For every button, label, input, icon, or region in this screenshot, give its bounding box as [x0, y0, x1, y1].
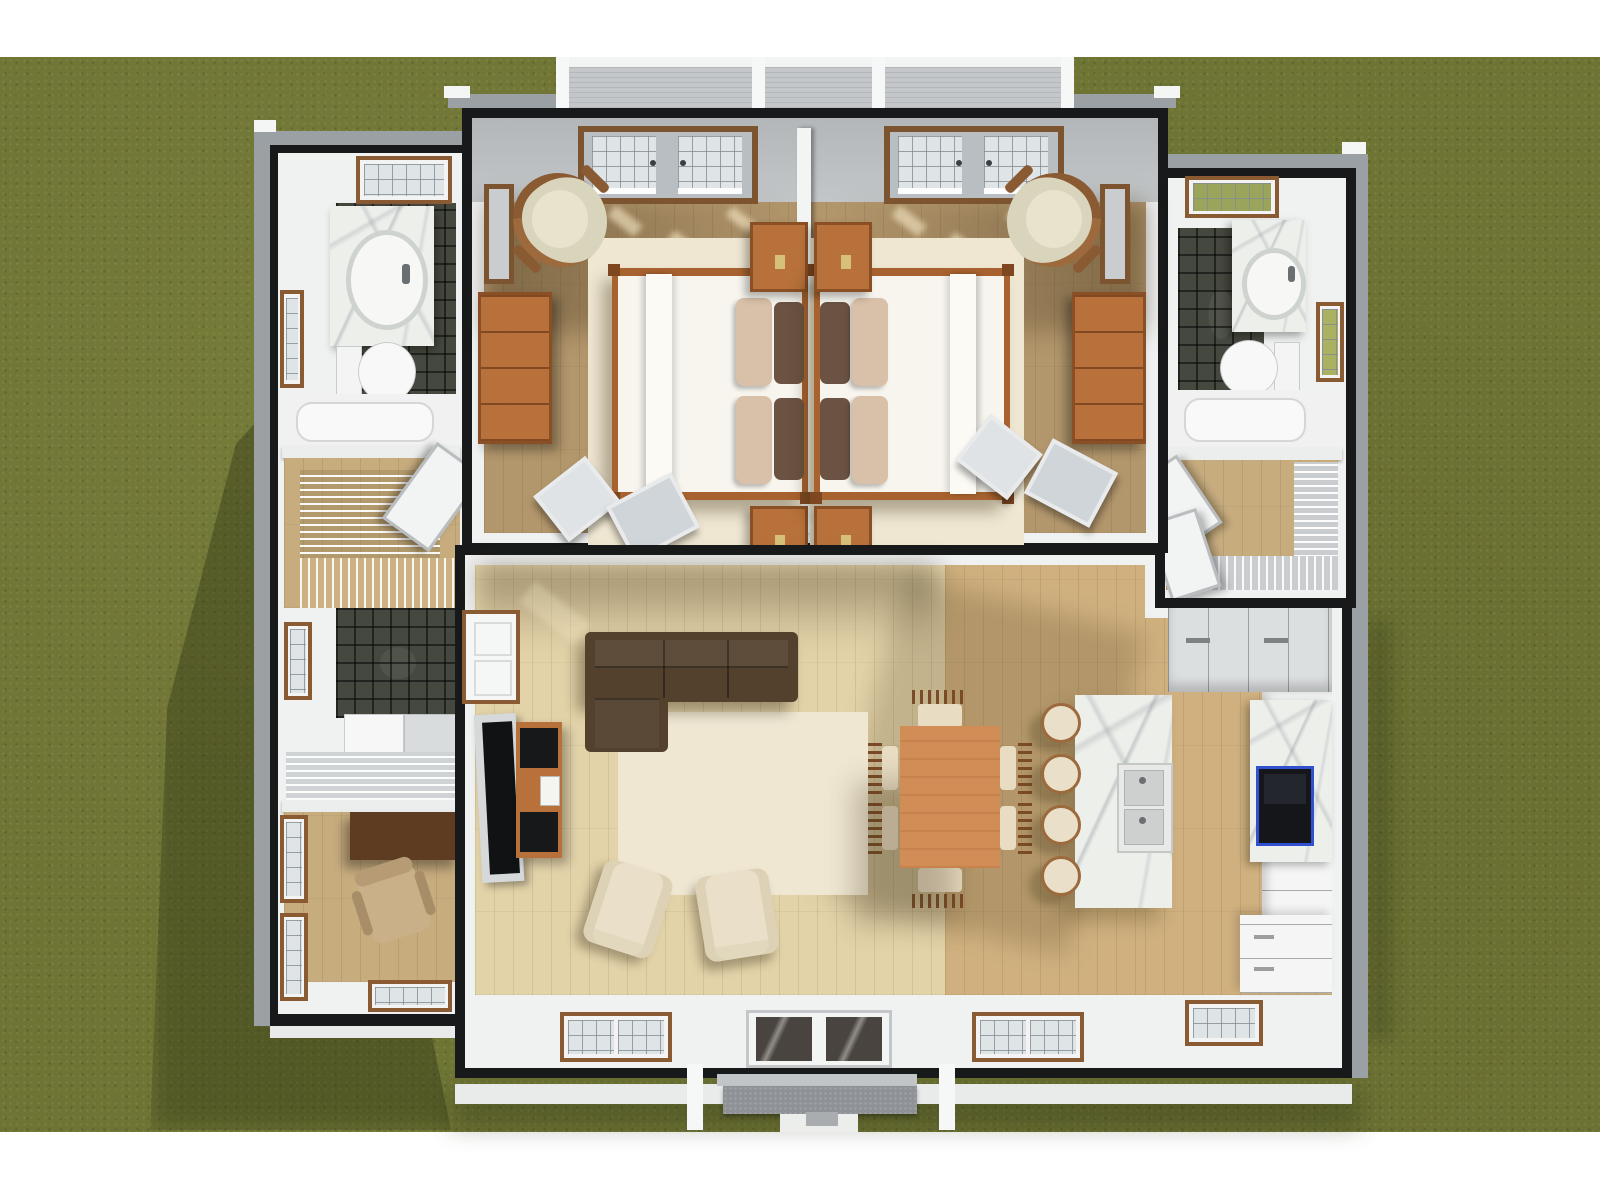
dining-chair	[1000, 742, 1032, 794]
bath1-vanity	[330, 206, 434, 346]
living-window-south-1	[560, 1012, 672, 1062]
office-window-west-1	[280, 815, 308, 903]
pillow-tan	[736, 396, 772, 484]
pillow-tan	[852, 298, 888, 386]
bath1-window-north	[356, 156, 452, 204]
roof-return-wingr	[1342, 142, 1366, 154]
porch-post	[939, 1064, 955, 1130]
eave-wing-right-north	[1148, 154, 1368, 168]
bath2-sink	[1242, 248, 1306, 320]
closet-shelf-east	[1294, 462, 1338, 564]
bedpost	[1002, 264, 1014, 276]
eave-wing-left-north	[254, 131, 470, 145]
porch-step-upper	[717, 1074, 917, 1086]
dining-chair	[1000, 802, 1032, 854]
deck-post	[556, 57, 569, 113]
bath1-sink	[346, 230, 428, 330]
bedroom2-nightstand-top	[814, 222, 872, 292]
bedpost	[608, 264, 620, 276]
stove	[1256, 766, 1314, 846]
roof-return-wingl	[254, 120, 276, 132]
bedpost	[810, 492, 822, 504]
deck-post	[872, 57, 885, 113]
dining-chair	[912, 690, 968, 730]
pillow-tan	[852, 396, 888, 484]
sectional-sofa	[585, 632, 800, 754]
bath2-window-north	[1185, 176, 1279, 218]
bath1-toilet	[336, 342, 416, 402]
bar-stool	[1041, 754, 1081, 794]
roof-return-ne	[1154, 86, 1180, 98]
island-sink	[1117, 763, 1173, 853]
bedroom2-dresser	[1072, 292, 1146, 444]
floor-plan-rendering	[0, 0, 1600, 1200]
bedroom1-accent-chair	[514, 172, 606, 268]
bar-stool	[1041, 856, 1081, 896]
office-desk	[350, 812, 460, 860]
bath1-faucet	[402, 264, 410, 284]
porch-steps	[723, 1086, 917, 1114]
porch-pad	[806, 1112, 838, 1126]
dining-chair	[868, 802, 900, 854]
laundry-window-west	[284, 622, 312, 700]
bedroom1-bed	[612, 268, 808, 500]
dining-table	[900, 726, 1000, 868]
pillow-brown	[774, 398, 804, 480]
landing-railing	[286, 752, 458, 800]
living-window-south-2	[972, 1012, 1084, 1062]
deck-rail	[556, 57, 1074, 67]
office-window-south	[368, 980, 452, 1012]
bath2-toilet	[1220, 340, 1300, 396]
pillow-tan	[736, 298, 772, 386]
house-shadow-east	[1366, 620, 1392, 1040]
hall-door	[462, 610, 520, 704]
kitchen-island	[1075, 695, 1172, 908]
pillow-brown	[820, 398, 850, 480]
bath2-faucet	[1288, 266, 1295, 282]
bedroom1-nightstand-top	[750, 222, 808, 292]
fridge-cabinets	[1168, 608, 1332, 692]
bath2-window-east	[1316, 302, 1344, 382]
pillow-brown	[820, 302, 850, 384]
bedroom1-dresser	[478, 292, 552, 444]
bath2-vanity	[1232, 220, 1306, 332]
porch-post	[687, 1064, 703, 1130]
rear-deck	[556, 67, 1074, 113]
bar-stool	[1041, 805, 1081, 845]
bedroom1-wall-mirror	[484, 184, 514, 284]
wall-bath2-south	[1162, 448, 1342, 460]
bath1-bathtub	[288, 394, 456, 446]
base-cabinets	[1240, 915, 1332, 993]
deck-post	[752, 57, 765, 113]
media-console	[516, 722, 562, 858]
bedroom2-wall-mirror	[1100, 184, 1130, 284]
front-door	[746, 1010, 892, 1068]
kitchen-window-south	[1185, 1000, 1263, 1046]
pillow-brown	[774, 302, 804, 384]
stair-treads	[300, 558, 456, 608]
laundry-tile-floor	[336, 608, 460, 718]
bath2-bathtub	[1176, 390, 1336, 446]
dining-chair	[912, 866, 968, 908]
bath1-window-west	[280, 290, 304, 388]
wall-laundry-south	[282, 800, 460, 812]
office-window-west-2	[280, 913, 308, 1001]
deck-post	[1061, 57, 1074, 113]
duvet-fold	[646, 274, 672, 494]
wing-left-eave-south	[270, 1026, 470, 1038]
armchair	[694, 867, 781, 964]
bedroom2-accent-chair	[1008, 172, 1100, 268]
roof-return-nw	[444, 86, 470, 98]
dining-chair	[868, 742, 900, 794]
bar-stool	[1041, 703, 1081, 743]
